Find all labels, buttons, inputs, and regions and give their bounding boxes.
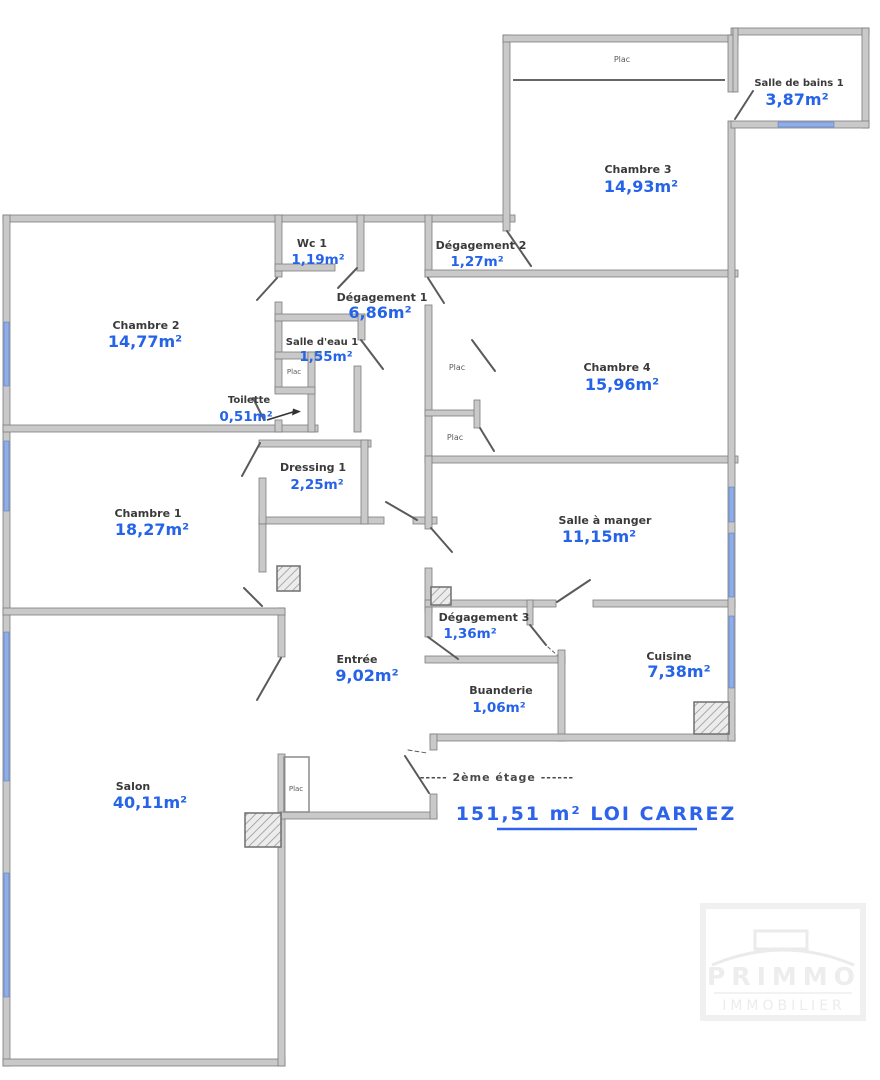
plac-label-chambre-4-upper: Plac [449, 363, 465, 372]
room-area-salle-d-eau-1: 1,55m² [299, 349, 352, 365]
room-area-buanderie: 1,06m² [472, 700, 525, 716]
room-label-toilette: Toilette [228, 395, 271, 406]
plac-label-chambre-4-lower: Plac [447, 433, 463, 442]
room-label-chambre-3: Chambre 3 [604, 163, 671, 176]
room-label-chambre-4: Chambre 4 [583, 361, 650, 374]
room-label-salon: Salon [116, 780, 151, 793]
room-area-salon: 40,11m² [113, 793, 187, 812]
room-area-salle-a-manger: 11,15m² [562, 527, 636, 546]
room-label-degagement-3: Dégagement 3 [439, 611, 530, 624]
room-area-dressing-1: 2,25m² [290, 477, 343, 493]
room-area-salle-de-bains-1: 3,87m² [765, 90, 828, 109]
room-area-chambre-2: 14,77m² [108, 332, 182, 351]
plac-label-chambre-3: Plac [614, 55, 630, 64]
watermark-immobilier: IMMOBILIER [722, 998, 846, 1014]
room-label-salle-a-manger: Salle à manger [559, 514, 652, 527]
room-area-chambre-4: 15,96m² [585, 375, 659, 394]
room-area-entree: 9,02m² [335, 666, 398, 685]
floor-plan-page: Chambre 3 14,93m² Salle de bains 1 3,87m… [0, 0, 880, 1080]
room-label-chambre-1: Chambre 1 [114, 507, 181, 520]
watermark-primmo: PRIMMO [707, 962, 861, 991]
room-label-dressing-1: Dressing 1 [280, 461, 346, 474]
room-area-degagement-3: 1,36m² [443, 626, 496, 642]
floor-note: ----- 2ème étage ------ [420, 771, 574, 784]
windows [4, 122, 834, 997]
room-area-degagement-2: 1,27m² [450, 254, 503, 270]
room-area-chambre-1: 18,27m² [115, 520, 189, 539]
plac-label-toilette: Plac [287, 368, 301, 376]
room-label-wc-1: Wc 1 [297, 237, 327, 250]
plac-label-salon: Plac [289, 785, 303, 793]
room-area-degagement-1: 6,86m² [348, 303, 411, 322]
room-area-chambre-3: 14,93m² [604, 177, 678, 196]
floor-plan: Chambre 3 14,93m² Salle de bains 1 3,87m… [0, 0, 880, 1080]
agency-watermark: PRIMMO IMMOBILIER [703, 906, 863, 1018]
room-label-degagement-2: Dégagement 2 [436, 239, 527, 252]
room-label-entree: Entrée [337, 653, 378, 666]
room-label-salle-d-eau-1: Salle d'eau 1 [286, 337, 358, 348]
room-label-chambre-2: Chambre 2 [112, 319, 179, 332]
room-label-salle-de-bains-1: Salle de bains 1 [754, 78, 843, 89]
room-area-wc-1: 1,19m² [291, 252, 344, 268]
room-area-cuisine: 7,38m² [647, 662, 710, 681]
total-area-loi-carrez: 151,51 m² LOI CARREZ [456, 803, 737, 825]
room-label-buanderie: Buanderie [469, 684, 532, 697]
room-area-toilette: 0,51m² [219, 409, 272, 425]
